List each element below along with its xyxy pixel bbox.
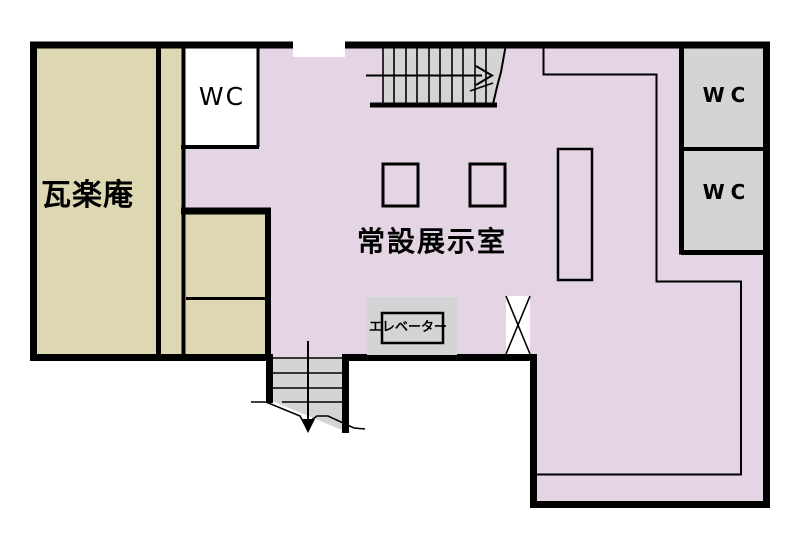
room-storage-fill <box>186 211 266 355</box>
floorplan: 瓦楽庵 常設展示室 WC WC WC エレベーター <box>0 0 800 550</box>
room-label-wc-left: WC <box>186 84 258 110</box>
room-exhibition-fill-lower <box>530 355 767 505</box>
room-label-wc-lower: WC <box>683 182 765 203</box>
room-label-garakuan: 瓦楽庵 <box>41 180 141 212</box>
room-label-exhibition: 常設展示室 <box>348 227 516 256</box>
shaft-x-marker <box>506 296 530 354</box>
room-label-elevator: エレベーター <box>359 321 457 335</box>
room-label-wc-upper: WC <box>683 85 765 106</box>
entrance-marker <box>293 28 345 57</box>
floorplan-drawing <box>0 0 800 550</box>
